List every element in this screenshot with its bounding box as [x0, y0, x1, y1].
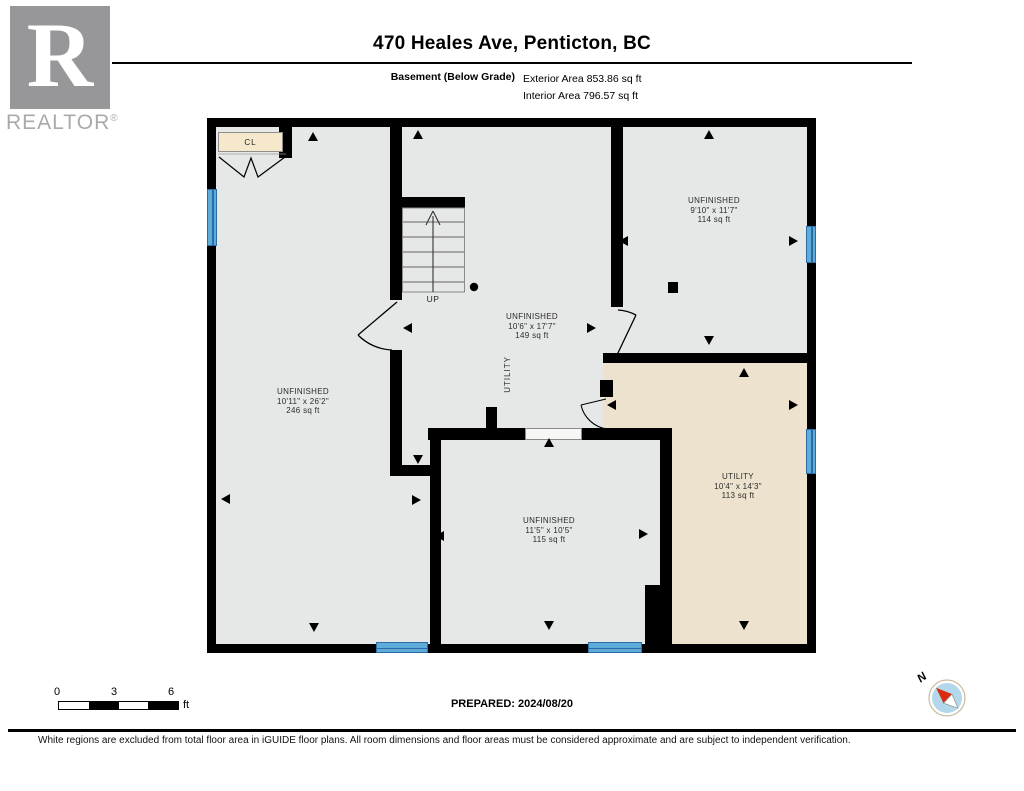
closet: CL — [218, 132, 283, 152]
floor-label: Basement (Below Grade) — [391, 71, 515, 83]
room-area: 114 sq ft — [688, 215, 740, 225]
dimension-arrow-right — [639, 529, 648, 539]
utility-corridor-label: UTILITY — [503, 356, 512, 393]
prepared-date: PREPARED: 2024/08/20 — [0, 698, 1024, 710]
realtor-logo-letter: R — [27, 9, 93, 101]
room-dimensions: 11'5" x 10'5" — [523, 526, 575, 536]
floor-plan-page: R REALTOR® 470 Heales Ave, Penticton, BC… — [0, 0, 1024, 791]
room-name: UTILITY — [714, 472, 762, 482]
room-name: UNFINISHED — [523, 516, 575, 526]
scale-tick-3: 3 — [111, 686, 117, 698]
door-swing — [581, 399, 607, 429]
dimension-arrow-left — [221, 494, 230, 504]
room-label-left: UNFINISHED 10'11" x 26'2" 246 sq ft — [277, 387, 329, 416]
scale-tick-6: 6 — [168, 686, 174, 698]
dimension-arrow-down — [413, 455, 423, 464]
stairs-up-label: UP — [427, 294, 440, 304]
room-label-middle: UNFINISHED 10'6" x 17'7" 149 sq ft — [506, 312, 558, 341]
interior-area: Interior Area 796.57 sq ft — [523, 88, 641, 105]
dimension-arrow-up — [413, 130, 423, 139]
dimension-arrow-left — [607, 400, 616, 410]
dimension-arrow-down — [544, 621, 554, 630]
exterior-area: Exterior Area 853.86 sq ft — [523, 71, 641, 88]
column-dot — [470, 283, 478, 291]
dimension-arrow-left — [435, 531, 444, 541]
closet-label: CL — [244, 138, 256, 147]
room-dimensions: 10'4" x 14'3" — [714, 482, 762, 492]
page-title: 470 Heales Ave, Penticton, BC — [0, 33, 1024, 55]
dimension-arrow-right — [789, 400, 798, 410]
room-name: UNFINISHED — [277, 387, 329, 397]
realtor-wordmark-text: REALTOR — [6, 111, 110, 134]
dimension-arrow-up — [704, 130, 714, 139]
room-dimensions: 10'11" x 26'2" — [277, 397, 329, 407]
room-dimensions: 10'6" x 17'7" — [506, 322, 558, 332]
room-name: UNFINISHED — [688, 196, 740, 206]
area-summary: Exterior Area 853.86 sq ft Interior Area… — [523, 71, 641, 104]
room-label-utility: UTILITY 10'4" x 14'3" 113 sq ft — [714, 472, 762, 501]
dimension-arrow-up — [544, 438, 554, 447]
room-label-bottom: UNFINISHED 11'5" x 10'5" 115 sq ft — [523, 516, 575, 545]
realtor-logo: R — [10, 6, 110, 109]
scale-tick-0: 0 — [54, 686, 60, 698]
door-swing — [617, 310, 636, 355]
footer-divider — [8, 729, 1016, 732]
room-area: 246 sq ft — [277, 406, 329, 416]
floor-plan: CL UNFINISHED 10'11" x 26'2" 246 sq ft U… — [207, 118, 816, 653]
door-swing — [358, 302, 397, 350]
room-dimensions: 9'10" x 11'7" — [688, 206, 740, 216]
dimension-arrow-down — [309, 623, 319, 632]
bifold-door — [219, 157, 285, 177]
dimension-arrow-right — [412, 495, 421, 505]
dimension-arrow-up — [739, 368, 749, 377]
footer-disclaimer: White regions are excluded from total fl… — [38, 735, 1004, 746]
room-area: 113 sq ft — [714, 491, 762, 501]
dimension-arrow-right — [789, 236, 798, 246]
room-label-top-right: UNFINISHED 9'10" x 11'7" 114 sq ft — [688, 196, 740, 225]
realtor-wordmark: REALTOR® — [6, 111, 119, 135]
dimension-arrow-down — [739, 621, 749, 630]
dimension-arrow-left — [403, 323, 412, 333]
dimension-arrow-right — [587, 323, 596, 333]
dimension-arrow-left — [619, 236, 628, 246]
dimension-arrow-up — [308, 132, 318, 141]
room-area: 149 sq ft — [506, 331, 558, 341]
registered-mark: ® — [110, 113, 118, 124]
stair-direction-arrow — [426, 211, 440, 292]
compass-icon — [925, 678, 969, 722]
dimension-arrow-down — [704, 336, 714, 345]
title-divider — [112, 62, 912, 64]
room-name: UNFINISHED — [506, 312, 558, 322]
room-area: 115 sq ft — [523, 535, 575, 545]
